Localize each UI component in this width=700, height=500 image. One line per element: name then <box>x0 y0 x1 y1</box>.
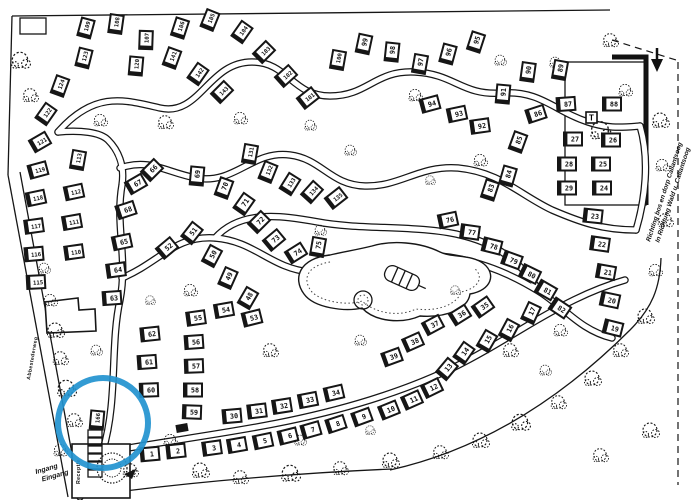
lot-number: 62 <box>148 330 157 339</box>
lot-number: 76 <box>445 215 455 225</box>
lot-marker: 7 <box>301 421 322 438</box>
lot-marker: 34 <box>324 385 344 402</box>
lot-number: 22 <box>597 240 606 249</box>
lot-marker: 105 <box>201 9 220 31</box>
lot-number: 26 <box>609 137 617 145</box>
tree-icon <box>282 465 301 481</box>
lot-marker: 35 <box>472 297 494 318</box>
lot-marker: 135 <box>325 187 347 208</box>
service-building <box>45 298 96 333</box>
lot-marker: 107 <box>139 31 153 49</box>
lot-marker: 116 <box>24 247 43 262</box>
lot-marker: 108 <box>108 14 123 34</box>
svg-text:T: T <box>589 114 594 123</box>
lot-number: 107 <box>144 33 150 43</box>
lot-marker: 95 <box>467 31 485 52</box>
lot-number: 88 <box>610 101 618 109</box>
tree-icon <box>551 396 566 409</box>
tree-icon <box>184 284 198 296</box>
lot-marker: 118 <box>26 190 46 206</box>
tree-icon <box>263 344 278 357</box>
lot-number: 91 <box>499 88 508 97</box>
lot-marker: 77 <box>460 224 480 239</box>
tree-icon <box>333 462 348 475</box>
lot-marker: 90 <box>520 62 535 82</box>
lot-number: 115 <box>33 280 43 287</box>
lot-marker: 5 <box>253 433 273 449</box>
tree-icon <box>474 154 488 166</box>
lot-marker: 3 <box>202 440 222 455</box>
tree-icon <box>12 52 31 68</box>
tree-icon <box>643 423 660 438</box>
tree-icon <box>554 324 568 336</box>
site-map: Receptie Ingang Eingang Abbestederweg Ri… <box>0 0 700 500</box>
lot-marker: 29 <box>558 182 576 195</box>
direction-sign: Richting bos en dorp Callantsoog In Rich… <box>645 48 692 245</box>
lot-marker: 87 <box>557 97 576 111</box>
lot-number: 99 <box>360 37 370 47</box>
lot-marker: 96 <box>439 44 456 65</box>
lot-number: 120 <box>134 58 141 69</box>
tree-icon <box>355 335 367 345</box>
lot-marker: 134 <box>301 181 323 203</box>
lot-number: 23 <box>590 212 599 221</box>
lot-marker: 38 <box>402 332 424 351</box>
lot-marker: 132 <box>259 161 278 183</box>
lot-marker: 112 <box>64 184 84 200</box>
lot-marker: 123 <box>76 48 93 69</box>
lot-number: 21 <box>603 268 612 277</box>
lot-marker: 71 <box>234 193 255 215</box>
lot-marker: 83 <box>481 179 499 200</box>
lot-marker: 122 <box>36 103 57 125</box>
lot-number: 92 <box>477 122 486 131</box>
lot-number: 90 <box>524 65 533 74</box>
lot-marker: 109 <box>77 18 94 39</box>
lot-marker: 58 <box>184 384 202 397</box>
lot-number: 31 <box>255 407 264 416</box>
lot-marker: 30 <box>222 409 241 424</box>
lot-number: 27 <box>571 136 579 144</box>
tree-icon <box>619 84 633 96</box>
lot-marker: 104 <box>232 21 253 43</box>
lot-number: 60 <box>147 386 155 394</box>
lot-marker: 84 <box>499 166 516 187</box>
tree-icon <box>158 116 173 129</box>
lot-number: 93 <box>454 109 464 119</box>
lot-marker: 61 <box>138 355 157 369</box>
lot-marker: 22 <box>590 236 610 251</box>
lot-number: 58 <box>191 387 199 395</box>
lot-number: 166 <box>95 412 102 423</box>
tree-icon <box>305 120 317 130</box>
lot-number: 30 <box>230 412 239 421</box>
lot-marker: 8 <box>325 415 346 433</box>
lot-marker: 79 <box>501 251 522 269</box>
lot-number: 116 <box>31 252 42 259</box>
lot-marker: 113 <box>70 150 86 170</box>
lot-number: 24 <box>600 185 608 193</box>
site-map-page: Receptie Ingang Eingang Abbestederweg Ri… <box>0 0 700 500</box>
tree-icon <box>23 89 38 102</box>
lot-number: 98 <box>388 46 397 55</box>
lot-marker: 88 <box>603 98 621 111</box>
lot-marker: 141 <box>163 47 181 68</box>
lot-marker: 93 <box>447 106 467 122</box>
tree-icon <box>653 113 670 128</box>
lot-marker: 120 <box>129 56 144 75</box>
lot-marker: 9 <box>351 408 372 426</box>
lot-marker: 69 <box>190 166 205 185</box>
lot-number: 75 <box>314 240 323 249</box>
lot-marker: 92 <box>470 118 490 133</box>
lot-marker: 39 <box>381 348 402 366</box>
tree-icon <box>39 263 51 273</box>
lot-marker: 49 <box>218 267 237 289</box>
corner-structure <box>20 18 46 34</box>
lot-marker: 74 <box>285 243 307 264</box>
lot-marker: 62 <box>140 327 159 342</box>
lot-marker: 55 <box>186 310 206 325</box>
lot-number: 87 <box>564 100 573 109</box>
lot-number: 1 <box>150 450 155 458</box>
lot-marker: 124 <box>51 75 69 96</box>
lot-marker: 119 <box>28 161 49 178</box>
lot-number: 61 <box>145 358 154 367</box>
lot-marker: 20 <box>600 292 620 308</box>
lot-marker: 110 <box>64 244 84 259</box>
lot-marker: 76 <box>438 212 458 228</box>
lot-marker: 56 <box>185 335 204 349</box>
lot-number: 29 <box>565 185 573 193</box>
lot-marker: 78 <box>482 238 503 255</box>
lot-marker: 133 <box>280 173 301 195</box>
lot-marker: 115 <box>27 275 46 289</box>
tree-icon <box>345 145 357 155</box>
lot-marker: 98 <box>385 42 400 61</box>
t-marker: T <box>586 112 597 123</box>
lot-number: 55 <box>193 314 202 323</box>
lot-marker: 97 <box>412 54 428 74</box>
lot-marker: 142 <box>188 63 209 85</box>
lot-marker: 2 <box>166 444 185 459</box>
lot-marker: 73 <box>263 229 285 251</box>
tree-icon <box>91 345 103 355</box>
tree-icon <box>53 352 68 365</box>
tree-icon <box>146 296 156 305</box>
tree-icon <box>540 365 552 375</box>
lot-number: 56 <box>192 338 201 347</box>
lot-number: 2 <box>176 447 181 455</box>
lot-marker: 28 <box>558 158 576 171</box>
tree-icon <box>503 344 518 357</box>
lot-marker: 117 <box>24 218 44 233</box>
lot-number: 77 <box>467 228 476 237</box>
tree-icon <box>593 449 608 462</box>
tree-icon <box>603 34 618 47</box>
lot-marker: 64 <box>106 262 126 277</box>
lot-marker: 50 <box>202 245 222 267</box>
lot-marker: 4 <box>227 437 247 453</box>
tree-icon <box>366 426 376 435</box>
lot-marker: 32 <box>272 398 292 414</box>
lot-marker: 86 <box>525 105 546 123</box>
boundary-top <box>12 10 610 16</box>
lot-marker: 91 <box>496 84 511 103</box>
lot-marker: 166 <box>90 410 105 429</box>
lot-number: 97 <box>416 57 425 66</box>
lot-marker: 99 <box>356 34 372 54</box>
lot-marker: 54 <box>214 302 234 318</box>
lot-number: 32 <box>279 402 288 411</box>
lot-marker: 100 <box>330 50 346 70</box>
lot-marker: 59 <box>183 405 201 419</box>
direction-arrow-icon <box>651 59 663 72</box>
lot-number: 63 <box>110 294 119 303</box>
tree-icon <box>233 471 248 484</box>
tree-icon <box>193 463 210 478</box>
tree-icon <box>426 176 436 185</box>
tree-icon <box>94 114 108 126</box>
lot-number: 57 <box>192 362 200 370</box>
lot-number: 64 <box>113 266 122 275</box>
lot-marker: 23 <box>583 209 602 224</box>
lot-marker: 26 <box>602 134 620 147</box>
lot-marker: 21 <box>596 264 616 280</box>
lot-marker: 85 <box>509 131 527 152</box>
lot-marker: 27 <box>564 133 582 146</box>
tree-icon <box>495 55 507 65</box>
lot-marker: 31 <box>247 403 266 418</box>
lot-marker: 11 <box>401 390 423 409</box>
lot-marker: 48 <box>238 287 258 309</box>
lot-marker: 63 <box>103 291 122 305</box>
tree-icon <box>585 371 602 386</box>
tree-icon <box>613 344 628 357</box>
lot-number: 59 <box>190 409 198 417</box>
lot-marker: 106 <box>171 17 189 38</box>
lot-marker: 33 <box>298 392 318 408</box>
boundary-left-top <box>8 16 12 175</box>
lot-number: 20 <box>607 296 617 306</box>
lot-marker: 89 <box>552 60 568 80</box>
lot-marker: 25 <box>592 158 610 171</box>
lot-marker: 60 <box>140 383 158 397</box>
lot-marker: 10 <box>378 401 400 420</box>
lot-marker: 37 <box>422 315 444 335</box>
lot-marker: 53 <box>242 310 263 327</box>
lot-number: 28 <box>565 161 573 169</box>
lot-marker: 111 <box>62 214 82 230</box>
lot-number: 33 <box>305 395 315 404</box>
tree-icon <box>383 453 400 468</box>
lot-number: 89 <box>556 63 565 72</box>
street-label: Abbestederweg <box>26 336 40 380</box>
lot-number: 69 <box>193 170 202 179</box>
lot-marker: 65 <box>112 234 132 250</box>
lot-marker: 143 <box>211 81 233 103</box>
lot-number: 54 <box>221 306 230 315</box>
tree-icon <box>234 112 248 124</box>
tree-icon <box>433 446 448 459</box>
tree-icon <box>67 414 82 427</box>
gate-marker <box>175 423 188 433</box>
lot-marker: 131 <box>242 144 258 164</box>
lot-marker: 121 <box>29 132 51 152</box>
lot-marker: 67 <box>125 174 147 194</box>
lot-marker: 75 <box>310 237 326 257</box>
lot-number: 65 <box>119 237 129 247</box>
lot-marker: 57 <box>185 359 203 373</box>
lot-marker: 24 <box>593 182 611 195</box>
lot-number: 25 <box>599 161 607 169</box>
